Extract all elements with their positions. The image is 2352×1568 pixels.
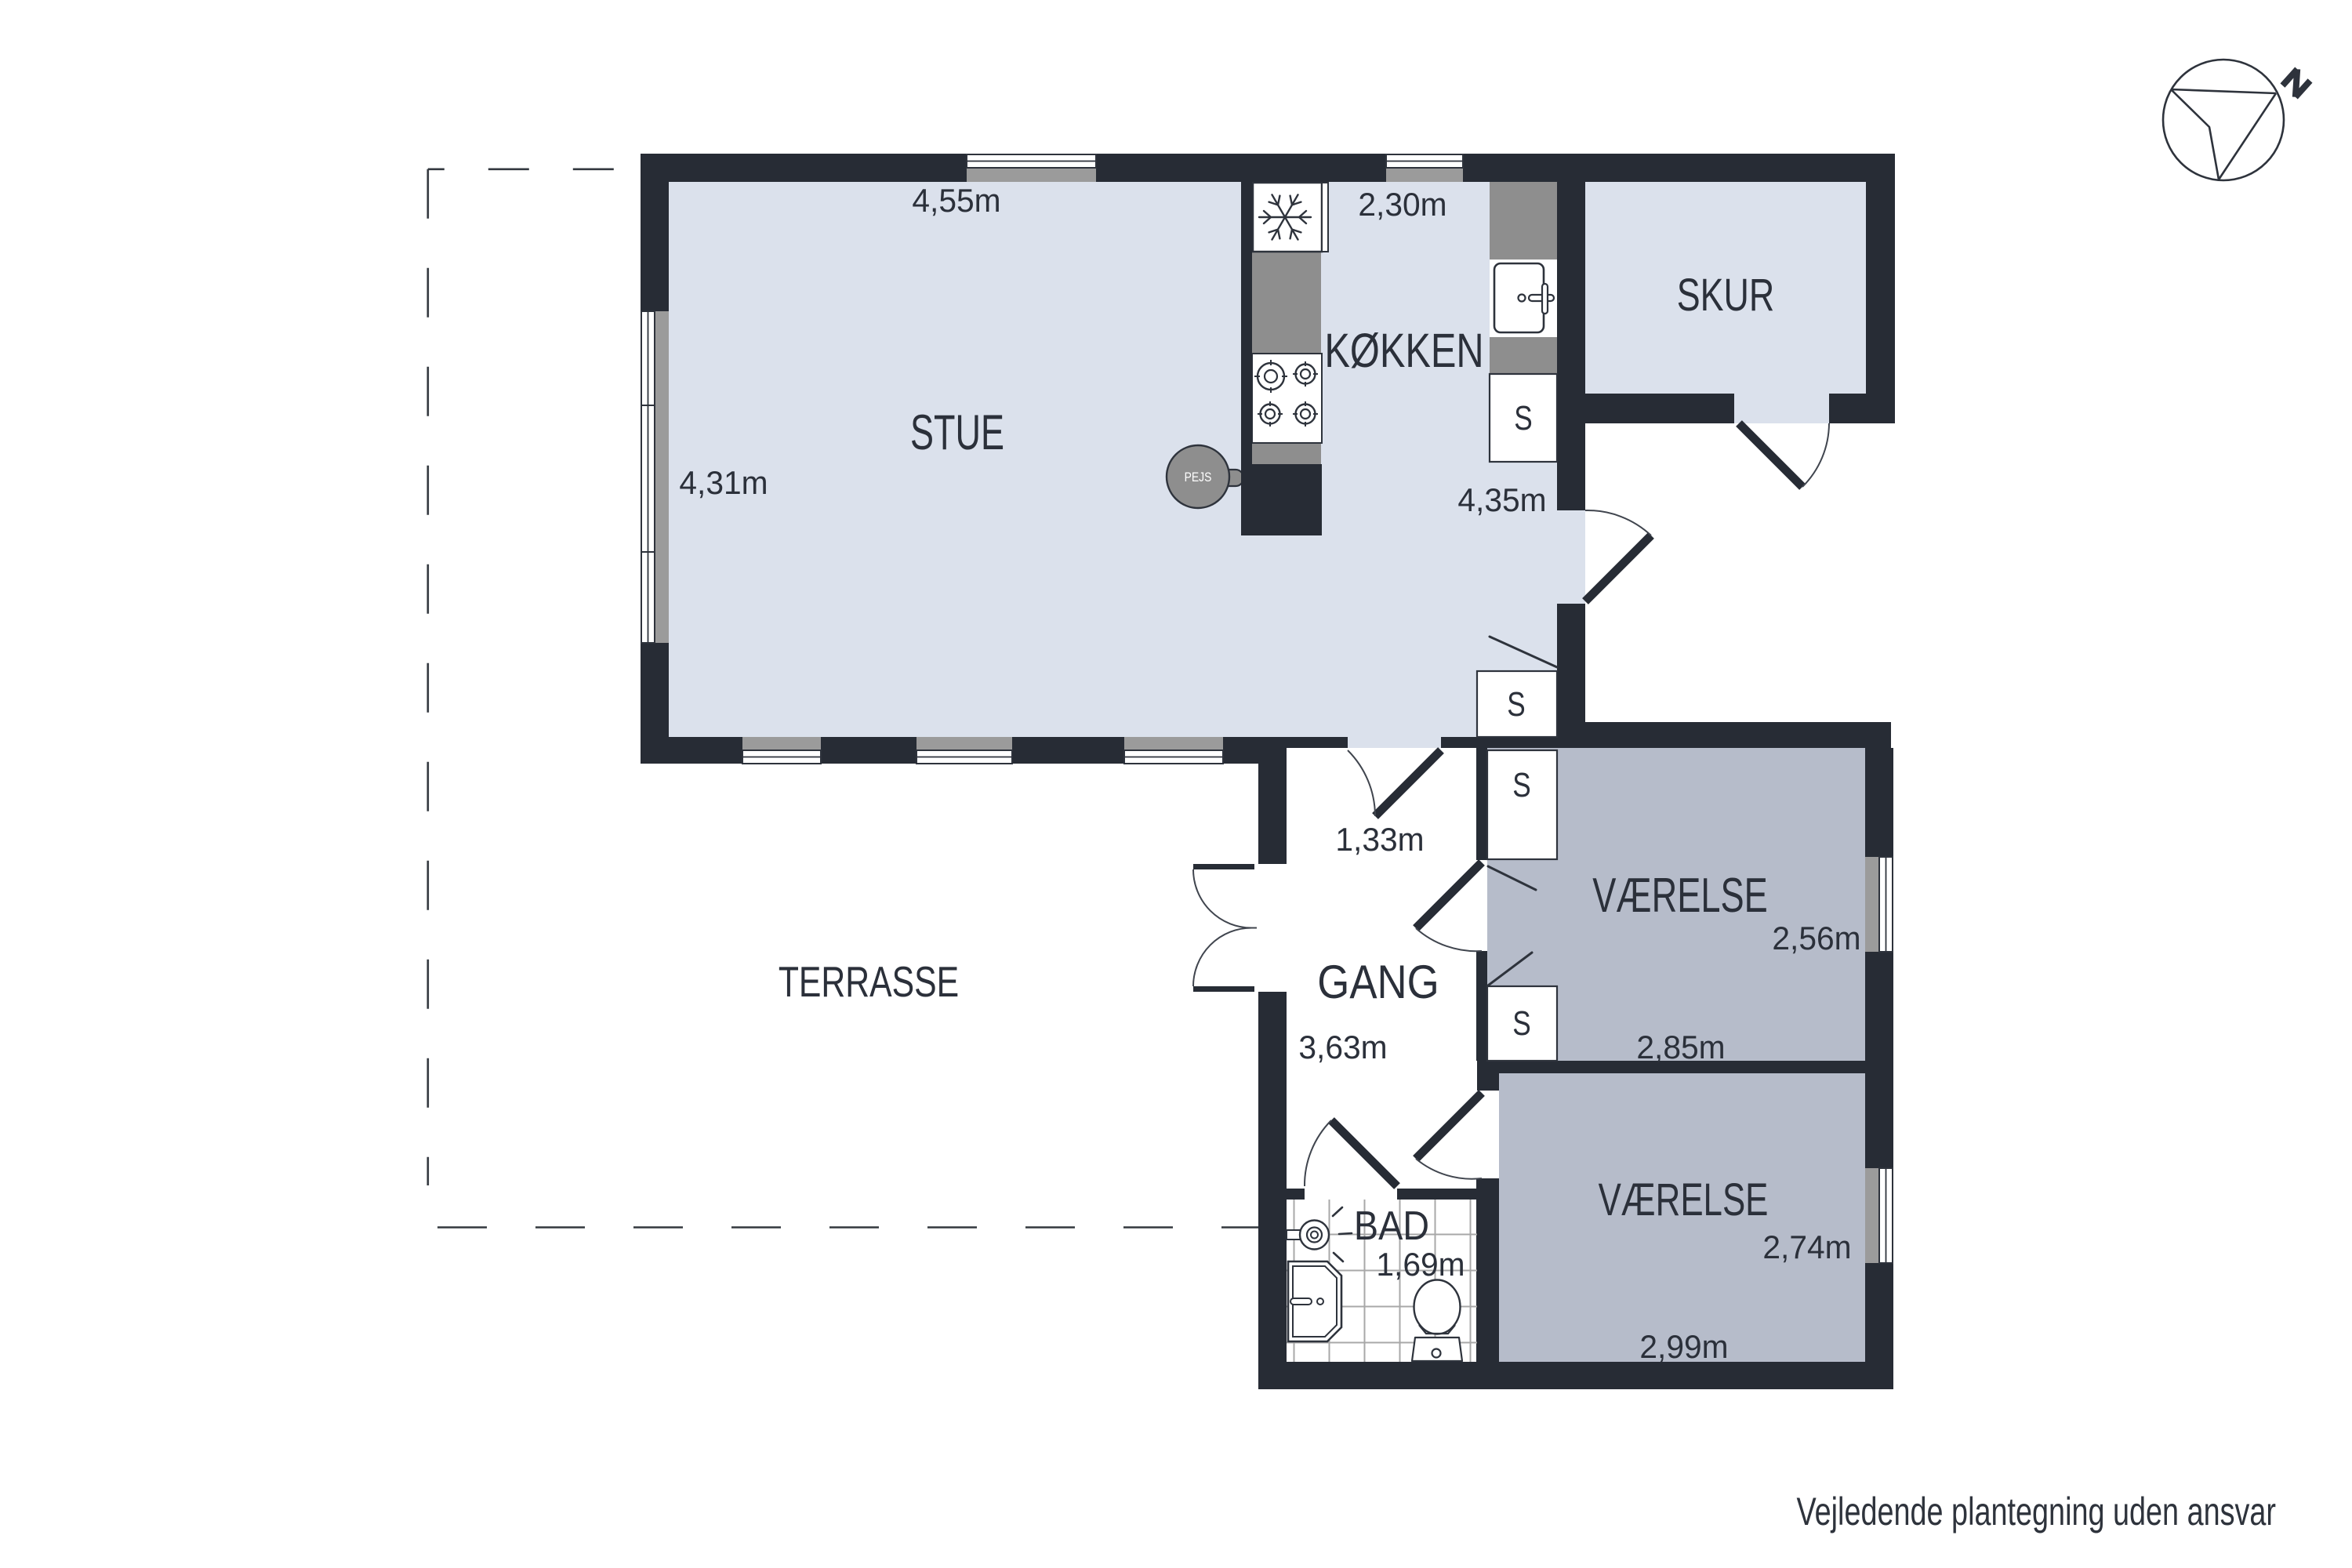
svg-text:4,35m: 4,35m [1457,481,1546,518]
svg-text:4,31m: 4,31m [679,464,768,501]
svg-text:BAD: BAD [1354,1203,1429,1249]
svg-text:1,33m: 1,33m [1335,821,1424,858]
svg-text:S: S [1507,685,1525,724]
svg-text:Vejledende plantegning uden an: Vejledende plantegning uden ansvar [1797,1490,2277,1534]
svg-text:2,99m: 2,99m [1639,1328,1728,1365]
svg-text:S: S [1512,1004,1530,1043]
svg-text:1,69m: 1,69m [1376,1246,1465,1283]
svg-text:3,63m: 3,63m [1298,1029,1387,1065]
svg-text:VÆRELSE: VÆRELSE [1592,868,1767,923]
svg-text:GANG: GANG [1317,956,1439,1008]
svg-text:SKUR: SKUR [1677,269,1775,320]
svg-text:2,74m: 2,74m [1762,1229,1851,1265]
svg-text:2,30m: 2,30m [1358,186,1446,223]
svg-text:2,85m: 2,85m [1636,1029,1725,1065]
svg-text:4,55m: 4,55m [912,182,1000,219]
svg-text:STUE: STUE [910,404,1004,459]
svg-text:S: S [1514,399,1532,437]
svg-text:2,56m: 2,56m [1772,920,1860,956]
svg-text:PEJS: PEJS [1185,470,1212,485]
svg-text:TERRASSE: TERRASSE [779,958,959,1006]
svg-text:S: S [1512,766,1530,804]
svg-text:VÆRELSE: VÆRELSE [1599,1174,1769,1225]
svg-text:KØKKEN: KØKKEN [1324,324,1483,377]
